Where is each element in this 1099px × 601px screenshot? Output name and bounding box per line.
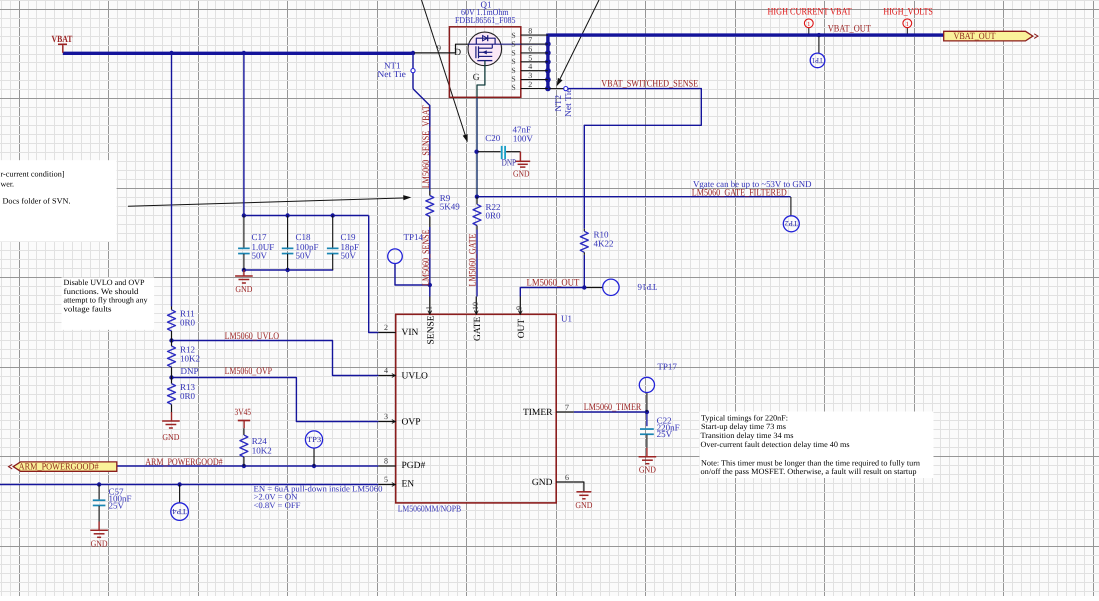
svg-text:TP2: TP2 [785, 219, 798, 228]
svg-text:GATE: GATE [473, 317, 483, 341]
svg-text:3: 3 [528, 71, 532, 80]
svg-text:50V: 50V [341, 251, 357, 261]
svg-text:<0.8V = OFF: <0.8V = OFF [254, 500, 301, 510]
svg-text:C17: C17 [252, 232, 268, 242]
svg-text:5: 5 [384, 475, 388, 484]
svg-text:HIGH CURRENT VBAT: HIGH CURRENT VBAT [768, 6, 852, 17]
svg-text:0R0: 0R0 [180, 318, 196, 328]
svg-text:D: D [454, 48, 461, 58]
svg-text:EN: EN [402, 480, 415, 490]
svg-text:GND: GND [162, 432, 179, 442]
svg-text:DNP: DNP [181, 366, 199, 376]
svg-text:9: 9 [437, 43, 441, 52]
svg-text:2: 2 [384, 323, 388, 332]
svg-text:SENSE: SENSE [427, 315, 437, 344]
svg-text:TP16: TP16 [637, 282, 657, 292]
svg-text:Vgate can be up to ~53V to GND: Vgate can be up to ~53V to GND [693, 179, 812, 189]
svg-text:25V: 25V [657, 429, 673, 439]
svg-text:OUT: OUT [517, 319, 527, 339]
svg-text:2: 2 [528, 80, 532, 89]
svg-text:6: 6 [565, 473, 569, 482]
svg-text:Docs folder of SVN.: Docs folder of SVN. [3, 197, 71, 206]
svg-text:TP4: TP4 [172, 507, 187, 516]
svg-text:LM5060_SENSE_VBAT: LM5060_SENSE_VBAT [421, 105, 432, 188]
svg-text:VBAT_SWITCHED_SENSE: VBAT_SWITCHED_SENSE [601, 79, 698, 90]
svg-text:LM5060_OVP: LM5060_OVP [225, 366, 273, 377]
svg-text:Typical timings for 220nF:: Typical timings for 220nF: [701, 413, 788, 422]
svg-text:r-current condition]: r-current condition] [1, 170, 65, 179]
svg-text:Start-up delay time 73 ms: Start-up delay time 73 ms [701, 422, 786, 431]
svg-text:PGD#: PGD# [402, 461, 426, 471]
svg-text:GND: GND [639, 465, 656, 475]
svg-text:4: 4 [528, 62, 532, 71]
svg-text:S: S [511, 66, 515, 75]
svg-text:TP17: TP17 [657, 361, 677, 371]
svg-text:4: 4 [384, 366, 388, 375]
svg-text:LM5060_UVLO: LM5060_UVLO [225, 331, 280, 342]
svg-text:attempt to fly through any: attempt to fly through any [64, 296, 148, 305]
svg-text:VBAT_OUT: VBAT_OUT [954, 32, 996, 42]
svg-text:U1: U1 [561, 313, 572, 323]
svg-text:25V: 25V [109, 501, 125, 511]
svg-text:TIMER: TIMER [523, 408, 553, 418]
svg-text:VBAT_OUT: VBAT_OUT [828, 24, 871, 35]
svg-text:C18: C18 [296, 232, 312, 242]
svg-text:Transition delay time 34 ms: Transition delay time 34 ms [701, 431, 794, 440]
svg-text:4K22: 4K22 [594, 238, 614, 248]
svg-text:Over-current fault detection d: Over-current fault detection delay time … [701, 440, 850, 449]
svg-text:LM5060MM/NOPB: LM5060MM/NOPB [398, 504, 462, 514]
svg-text:3V45: 3V45 [235, 408, 252, 418]
svg-text:NT2: NT2 [553, 95, 563, 112]
svg-text:5K49: 5K49 [440, 202, 460, 212]
svg-text:Net Tie: Net Tie [563, 89, 573, 118]
svg-text:8: 8 [384, 457, 388, 466]
svg-text:S: S [511, 48, 515, 57]
svg-text:100V: 100V [513, 133, 534, 143]
svg-text:GND: GND [91, 538, 108, 548]
svg-text:1: 1 [807, 21, 810, 28]
svg-text:Net Tie: Net Tie [377, 69, 406, 79]
svg-text:S: S [511, 40, 515, 49]
svg-text:on/off the pass MOSFET. Otherw: on/off the pass MOSFET. Otherwise, a fau… [701, 467, 917, 476]
svg-text:LM5060_TIMER: LM5060_TIMER [584, 402, 642, 413]
svg-text:G: G [473, 73, 480, 83]
svg-text:LM5060_GATE: LM5060_GATE [467, 234, 478, 287]
svg-text:7: 7 [565, 403, 569, 412]
svg-text:7: 7 [528, 36, 532, 45]
svg-text:S: S [511, 31, 515, 40]
svg-text:R24: R24 [252, 436, 268, 446]
svg-text:1: 1 [906, 21, 909, 28]
svg-text:TP1: TP1 [812, 56, 824, 65]
svg-text:C20: C20 [485, 133, 501, 143]
svg-text:50V: 50V [252, 251, 268, 261]
svg-text:ARM_POWERGOOD#: ARM_POWERGOOD# [19, 463, 99, 473]
svg-text:1: 1 [424, 306, 433, 310]
svg-text:3: 3 [384, 412, 388, 421]
svg-text:10K2: 10K2 [252, 446, 272, 456]
svg-text:LM5060_OUT: LM5060_OUT [527, 278, 580, 289]
svg-text:FDBL86561_F085: FDBL86561_F085 [455, 15, 516, 25]
svg-text:functions. We should: functions. We should [64, 287, 139, 296]
svg-text:ARM_POWERGOOD#: ARM_POWERGOOD# [145, 457, 223, 468]
svg-text:S: S [511, 83, 515, 92]
svg-text:0R0: 0R0 [180, 391, 196, 401]
svg-text:GND: GND [235, 284, 252, 294]
svg-text:voltage faults: voltage faults [64, 304, 112, 313]
svg-text:10: 10 [471, 302, 480, 310]
svg-text:GND: GND [575, 500, 592, 510]
svg-text:GND: GND [532, 478, 553, 488]
svg-text:9: 9 [515, 306, 524, 310]
svg-text:HIGH_VOLTS: HIGH_VOLTS [883, 6, 933, 17]
svg-text:50V: 50V [296, 251, 312, 261]
svg-text:GND: GND [513, 168, 530, 178]
svg-text:8: 8 [528, 27, 532, 36]
svg-text:10K2: 10K2 [180, 354, 200, 364]
svg-text:DNP: DNP [502, 159, 516, 169]
svg-text:S: S [511, 75, 515, 84]
svg-text:LM5060_GATE_FILTERED: LM5060_GATE_FILTERED [692, 187, 787, 198]
svg-text:Disable UVLO and OVP: Disable UVLO and OVP [64, 278, 146, 287]
svg-text:C19: C19 [341, 232, 357, 242]
svg-text:0R0: 0R0 [486, 211, 502, 221]
svg-text:UVLO: UVLO [402, 371, 429, 381]
svg-text:TP14: TP14 [404, 232, 424, 242]
svg-text:S: S [511, 57, 515, 66]
svg-text:wer.: wer. [1, 179, 15, 188]
svg-text:OVP: OVP [402, 417, 421, 427]
svg-text:6: 6 [528, 44, 532, 53]
svg-text:VIN: VIN [402, 328, 419, 338]
svg-text:5: 5 [528, 53, 532, 62]
svg-text:TP3: TP3 [307, 435, 321, 444]
